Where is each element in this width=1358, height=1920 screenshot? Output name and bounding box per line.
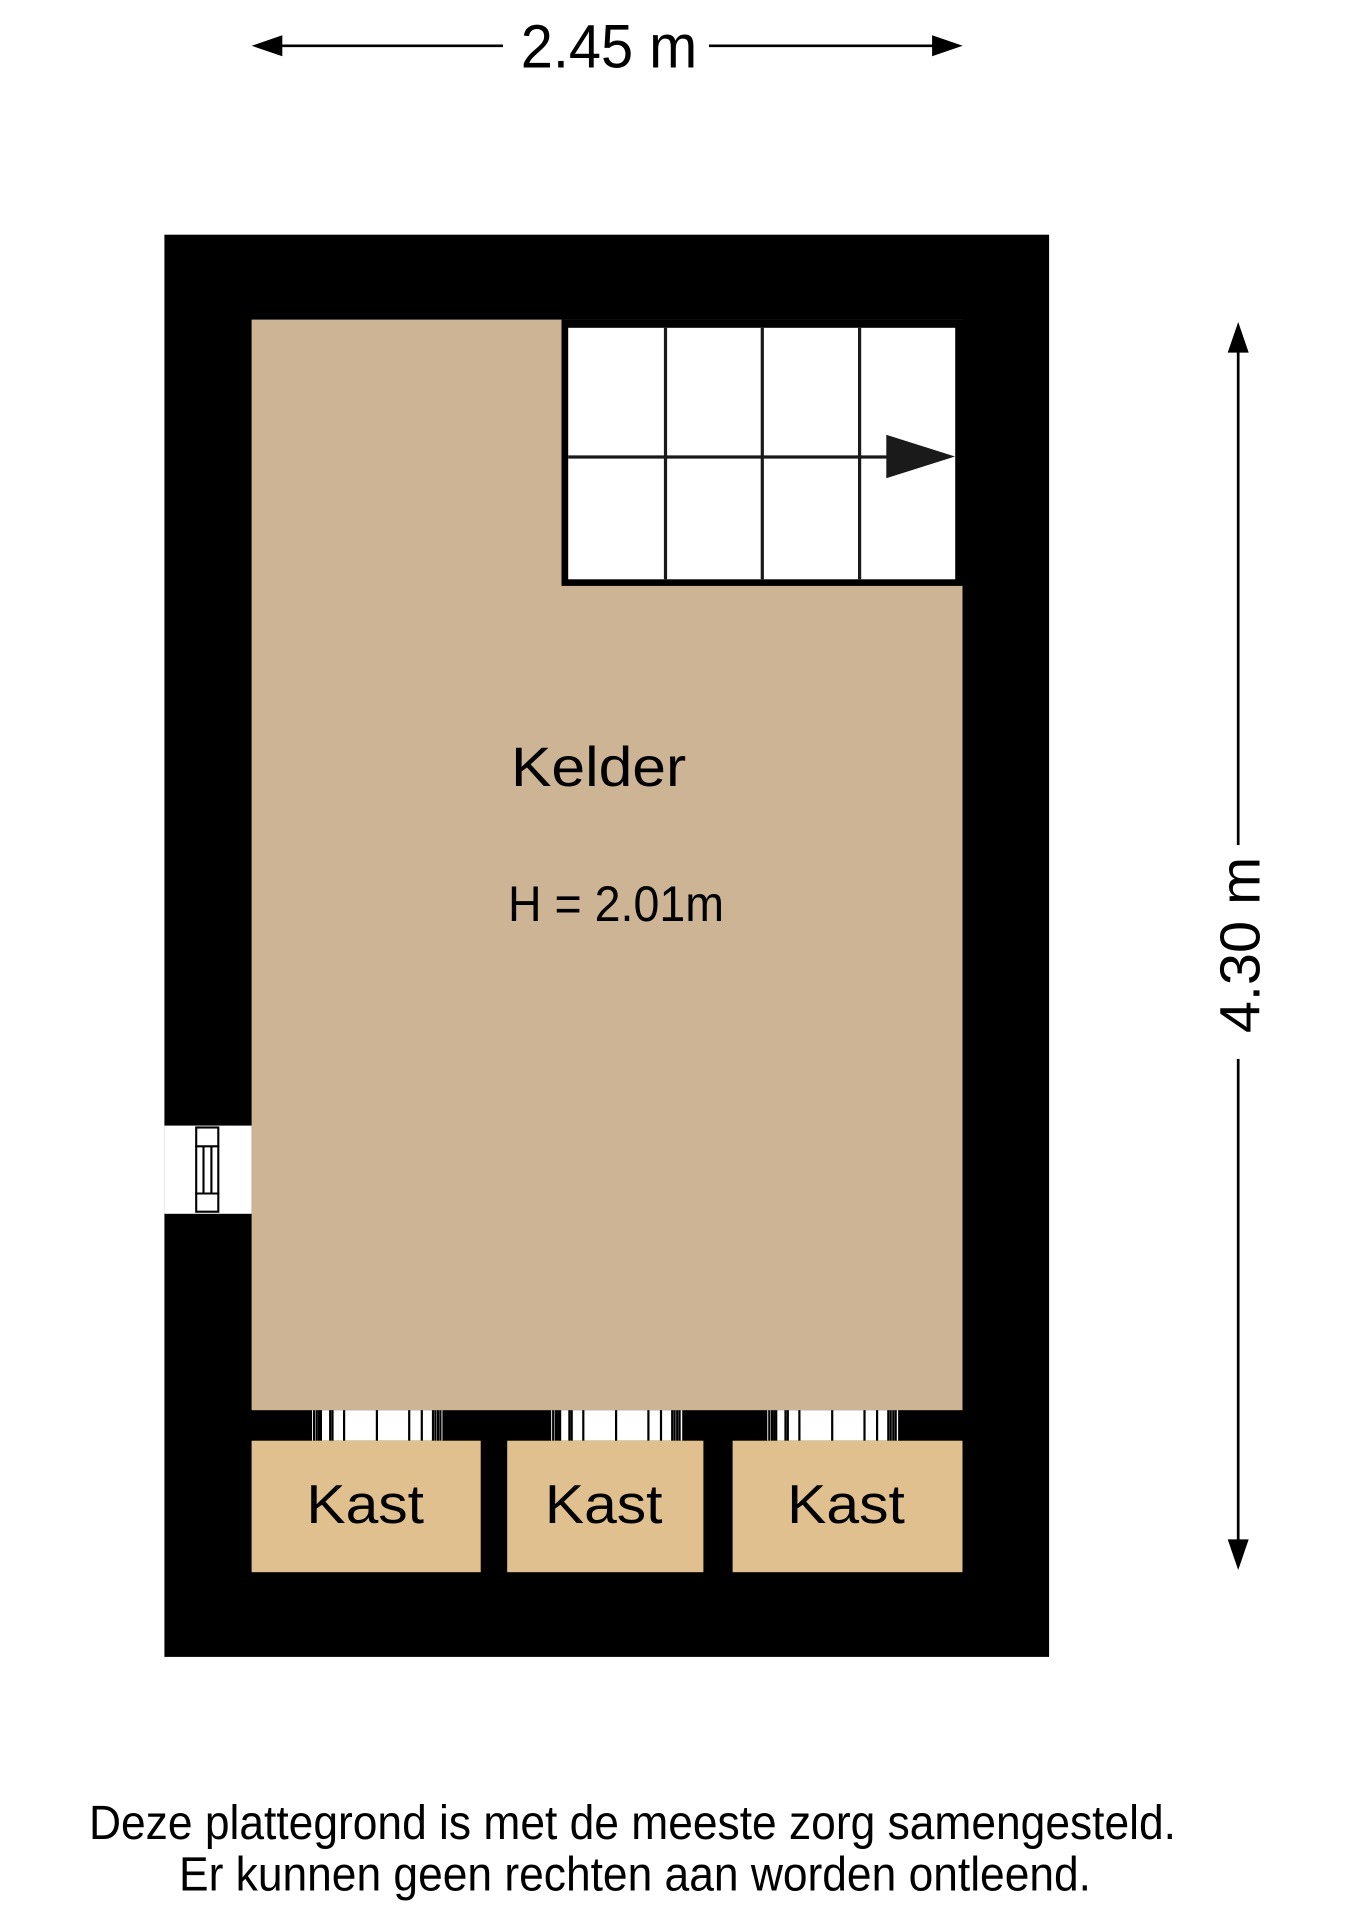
svg-text:4.30 m: 4.30 m: [1209, 857, 1273, 1033]
svg-text:Kelder: Kelder: [511, 735, 686, 798]
svg-text:Deze plattegrond is met de mee: Deze plattegrond is met de meeste zorg s…: [89, 1797, 1176, 1850]
svg-text:Kast: Kast: [306, 1473, 424, 1535]
svg-text:2.45 m: 2.45 m: [521, 13, 698, 81]
svg-text:H = 2.01m: H = 2.01m: [508, 876, 724, 932]
svg-text:Er kunnen geen rechten aan wor: Er kunnen geen rechten aan worden ontlee…: [179, 1849, 1091, 1902]
svg-text:Kast: Kast: [545, 1473, 663, 1535]
svg-text:Kast: Kast: [787, 1473, 905, 1535]
